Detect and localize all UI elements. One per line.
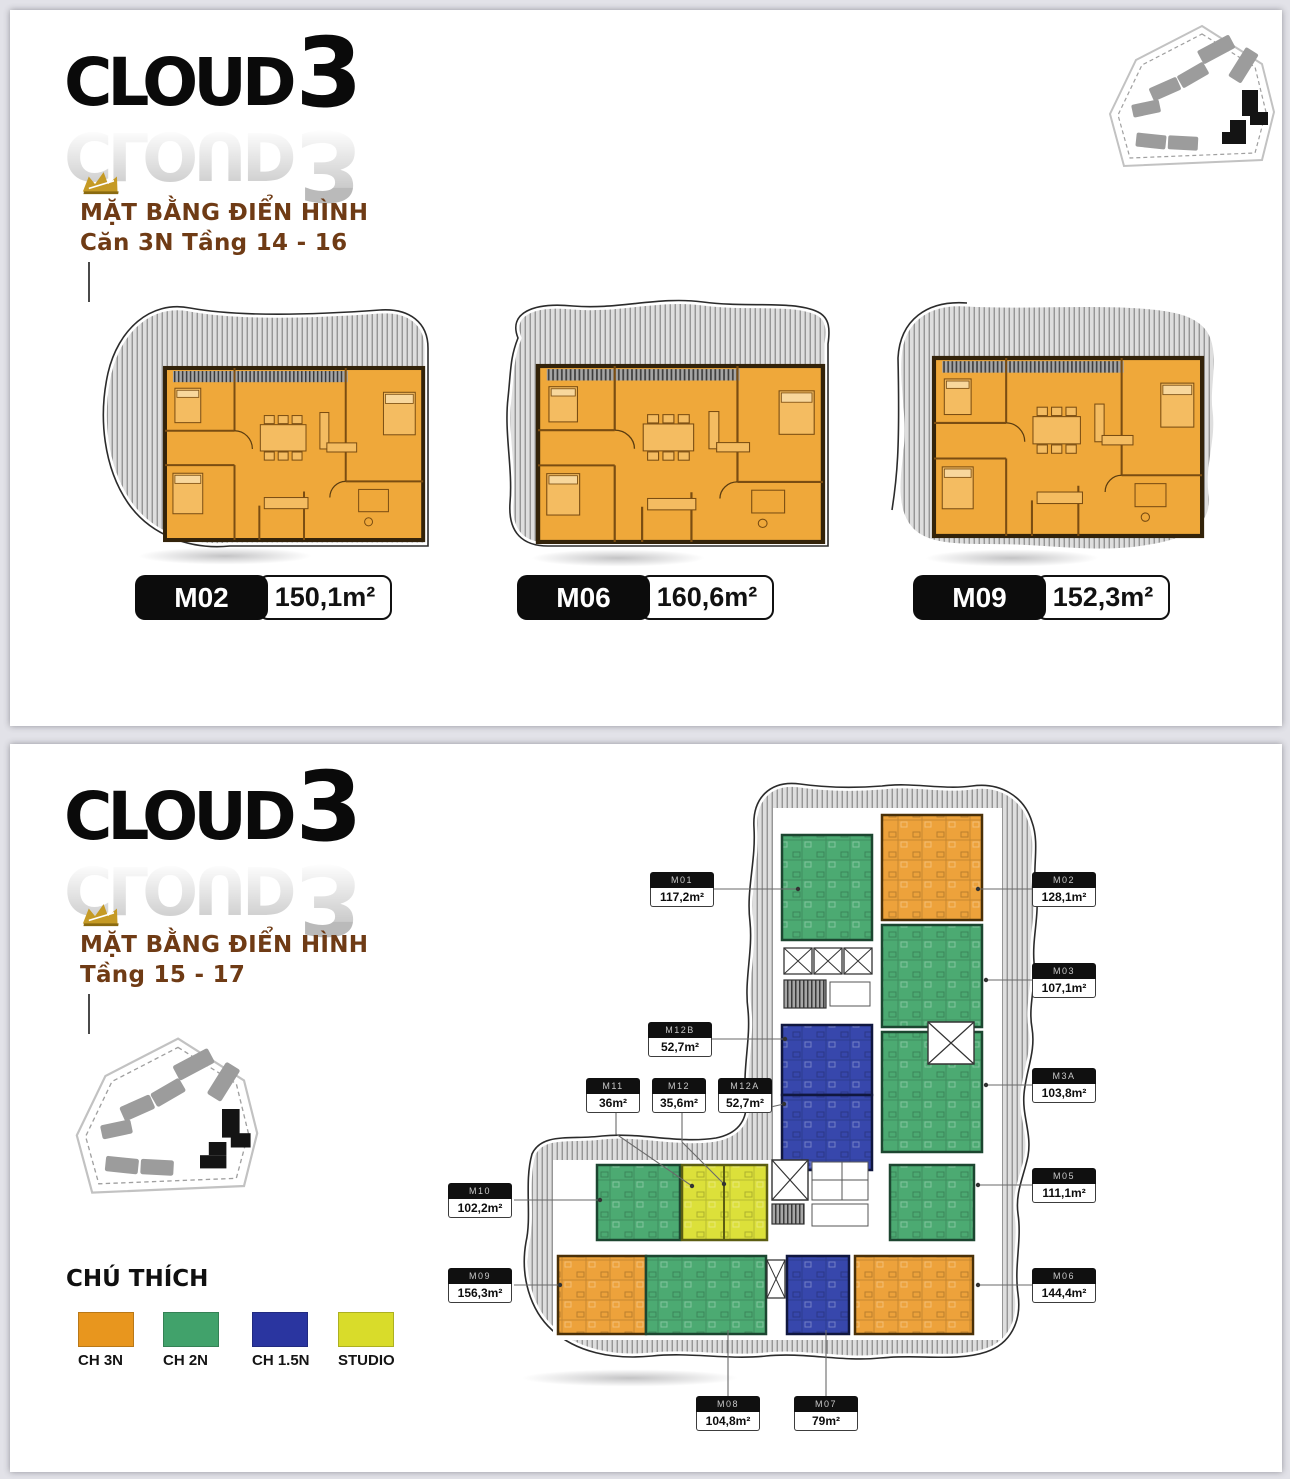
top-panel: CLOUD 3 CLOUD 3 MẶT BẰNG ĐIỂN HÌNH Căn 3… xyxy=(10,10,1282,726)
unit-label-m11: M11 36m² xyxy=(586,1078,640,1113)
unit-label-m01: M01 117,2m² xyxy=(650,872,714,907)
legend-label: STUDIO xyxy=(338,1352,395,1369)
logo-word: CLOUD xyxy=(64,784,292,850)
plan-badge-m09: M09 152,3m² xyxy=(913,575,1170,620)
cloud3-logo: CLOUD 3 CLOUD 3 xyxy=(64,50,384,188)
unit-label-m12b: M12B 52,7m² xyxy=(648,1022,712,1057)
unit-label-m12a: M12A 52,7m² xyxy=(718,1078,772,1113)
plan-id: M02 xyxy=(135,575,268,620)
unit-label-m08: M08 104,8m² xyxy=(696,1396,760,1431)
legend-title: CHÚ THÍCH xyxy=(66,1266,208,1292)
site-map xyxy=(1102,20,1282,180)
crown-icon xyxy=(82,902,126,928)
unit-label-m10: M10 102,2m² xyxy=(448,1183,512,1218)
legend-label: CH 1.5N xyxy=(252,1352,310,1369)
logo-digit: 3 xyxy=(296,36,363,111)
floor-plan-m09 xyxy=(872,278,1232,578)
legend-swatch-studio xyxy=(338,1312,394,1347)
bottom-panel: CLOUD 3 CLOUD 3 MẶT BẰNG ĐIỂN HÌNH Tầng … xyxy=(10,744,1282,1472)
unit-label-m03: M03 107,1m² xyxy=(1032,963,1096,998)
legend-swatch-ch2n xyxy=(163,1312,219,1347)
plan-id: M06 xyxy=(517,575,650,620)
title-connector-line xyxy=(88,994,90,1034)
unit-label-m06: M06 144,4m² xyxy=(1032,1268,1096,1303)
unit-label-m3a: M3A 103,8m² xyxy=(1032,1068,1096,1103)
plan-shadow xyxy=(498,546,738,570)
floor-plan-m06 xyxy=(478,278,838,578)
site-map xyxy=(68,1032,266,1208)
plan-area: 160,6m² xyxy=(640,575,774,620)
plan-shadow xyxy=(892,546,1132,570)
logo-word: CLOUD xyxy=(64,50,292,116)
brochure-page: CLOUD 3 CLOUD 3 MẶT BẰNG ĐIỂN HÌNH Căn 3… xyxy=(0,0,1290,1479)
unit-label-m09: M09 156,3m² xyxy=(448,1268,512,1303)
unit-label-m02: M02 128,1m² xyxy=(1032,872,1096,907)
floor-plan-m02 xyxy=(80,278,440,578)
legend-label: CH 2N xyxy=(163,1352,208,1369)
plan-area: 152,3m² xyxy=(1036,575,1170,620)
section-title: MẶT BẰNG ĐIỂN HÌNH xyxy=(80,200,368,226)
plan-shadow xyxy=(105,544,345,568)
plan-id: M09 xyxy=(913,575,1046,620)
plan-shadow xyxy=(480,1366,780,1390)
section-title: MẶT BẰNG ĐIỂN HÌNH xyxy=(80,932,368,958)
unit-label-m07: M07 79m² xyxy=(794,1396,858,1431)
plan-area: 150,1m² xyxy=(258,575,392,620)
legend-swatch-ch3n xyxy=(78,1312,134,1347)
section-subtitle: Căn 3N Tầng 14 - 16 xyxy=(80,230,347,256)
unit-label-m05: M05 111,1m² xyxy=(1032,1168,1096,1203)
floor-plan-overview xyxy=(430,770,1230,1410)
legend-swatch-ch15n xyxy=(252,1312,308,1347)
plan-badge-m06: M06 160,6m² xyxy=(517,575,774,620)
section-subtitle: Tầng 15 - 17 xyxy=(80,962,245,988)
legend-label: CH 3N xyxy=(78,1352,123,1369)
plan-badge-m02: M02 150,1m² xyxy=(135,575,392,620)
unit-label-m12: M12 35,6m² xyxy=(652,1078,706,1113)
crown-icon xyxy=(82,170,126,196)
logo-digit: 3 xyxy=(296,770,363,845)
